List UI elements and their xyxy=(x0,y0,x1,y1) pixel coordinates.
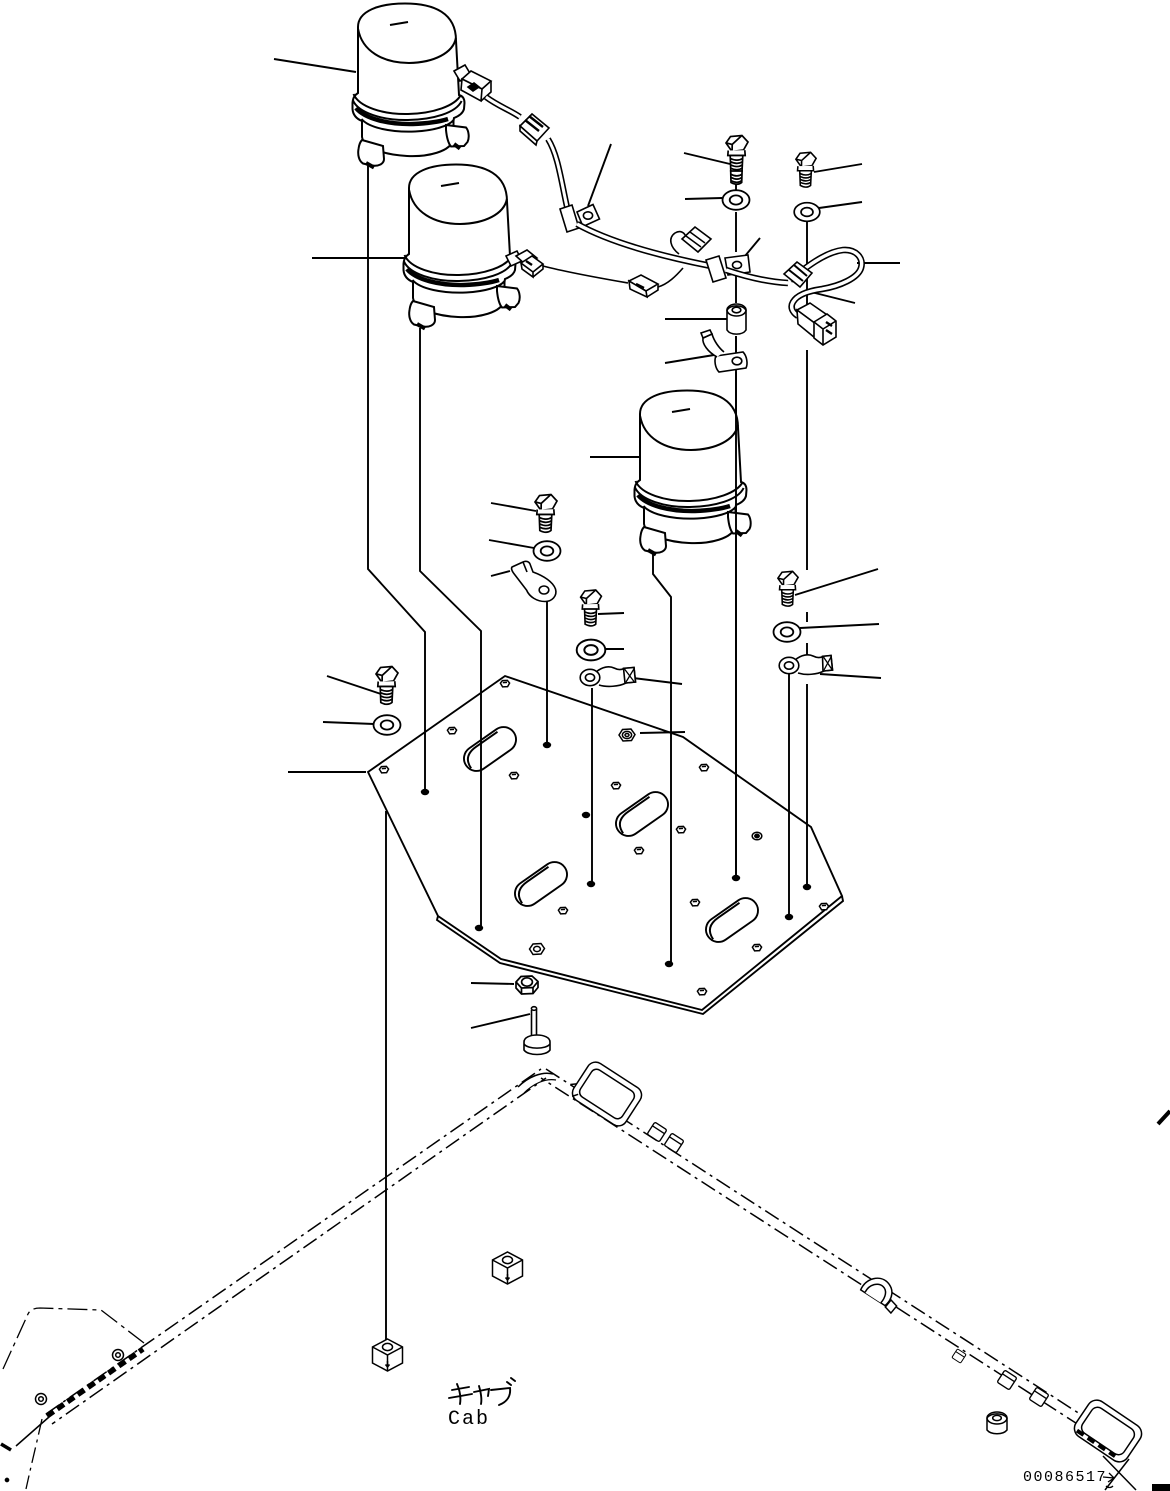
svg-text:Cab: Cab xyxy=(448,1408,490,1431)
svg-text:00086517: 00086517 xyxy=(1023,1469,1107,1486)
